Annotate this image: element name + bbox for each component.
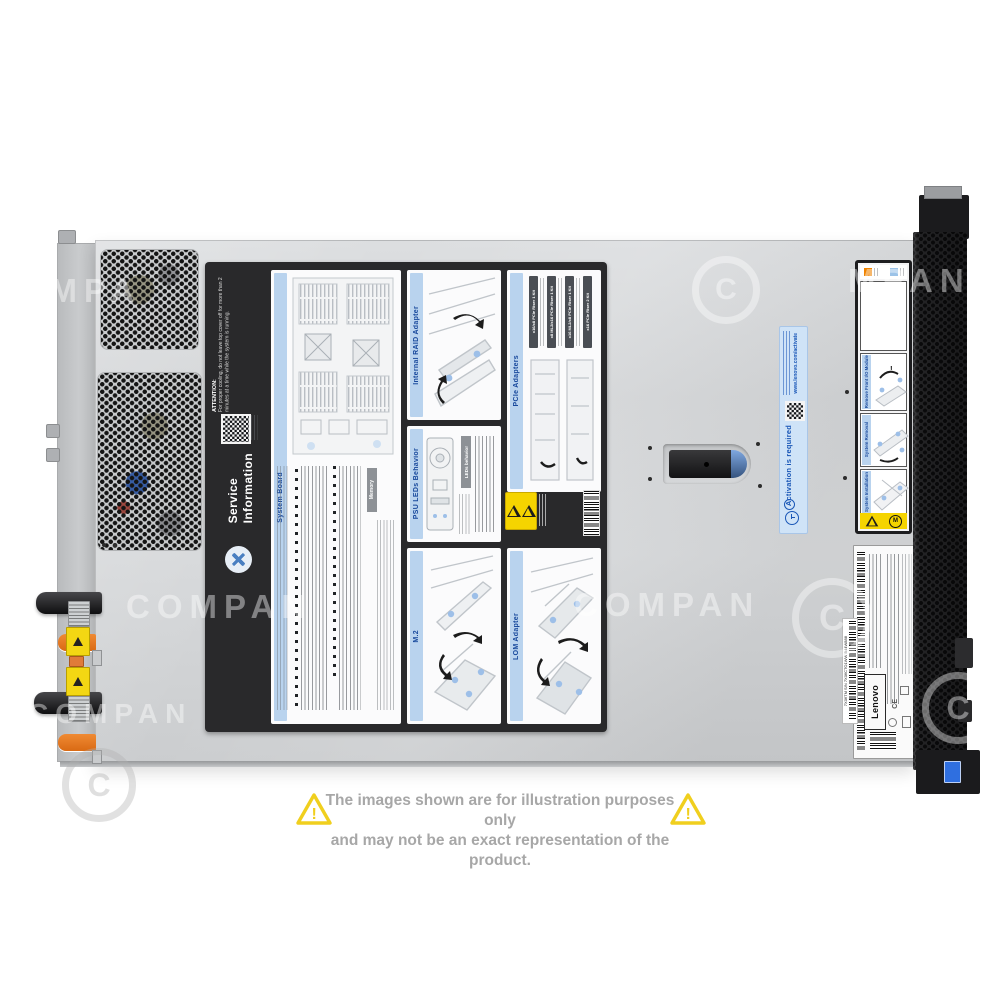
qr-caption-microtext	[251, 415, 258, 440]
panel3-title: System Installation	[864, 472, 869, 512]
rear-latch-tab-top	[58, 230, 76, 244]
pcie-illustration	[527, 354, 597, 488]
m2-illustration	[425, 552, 499, 720]
pcie-title: PCIe Adapters	[513, 355, 520, 407]
service-info-title: Service Information	[219, 438, 263, 538]
screw-dot	[648, 446, 652, 450]
watermark-text: COMPAN	[574, 586, 760, 624]
lom-illustration	[525, 552, 599, 720]
riser-microtext	[576, 278, 581, 346]
legend-microtext	[377, 520, 395, 710]
clock-icon	[785, 511, 799, 525]
raid-title: Internal RAID Adapter	[413, 306, 420, 385]
label-warning-sticker	[505, 492, 537, 530]
riser-kit-label: x16 PCIe Riser 2 Kit	[585, 293, 590, 331]
system-board-schematic	[291, 276, 397, 458]
watermark-logo: C	[792, 578, 872, 658]
riser-kit-label: x8 ML2/x16 PCIe Riser 1 Kit	[549, 286, 554, 338]
riser-kit-bar: x16 PCIe Riser 2 Kit	[583, 276, 592, 348]
pcie-header-band: PCIe Adapters	[510, 273, 523, 489]
screw-dot	[648, 477, 652, 481]
m2-title: M.2	[413, 630, 420, 643]
panel-lom-adapter: LOM Adapter	[507, 548, 601, 724]
disclaimer-warning-triangle-right: !	[669, 792, 707, 826]
activation-title-text: Activation is required	[784, 425, 793, 506]
screw-dot	[756, 442, 760, 446]
panel-m2: M.2	[407, 548, 501, 724]
rear-latch-tab-mid2	[46, 448, 60, 462]
bezel-latch-lug	[955, 638, 973, 668]
psu-leds-title: PSU LEDs Behavior	[413, 448, 420, 519]
riser-microtext	[540, 278, 545, 346]
psu-warning-label	[66, 627, 90, 656]
panel-system-installation: System Installation	[860, 469, 907, 515]
memory-header-band: Memory	[367, 468, 377, 512]
psu-illustration	[425, 434, 455, 534]
disclaimer-line2: and may not be an exact representation o…	[318, 831, 682, 871]
cert-icon	[900, 686, 909, 695]
cert-icon	[902, 716, 911, 728]
raid-header-band: Internal RAID Adapter	[410, 273, 423, 417]
rack-ear-top-cap	[924, 186, 962, 199]
svg-text:!: !	[312, 806, 317, 823]
activation-sticker: www.lenovo.com/activate Activation is re…	[779, 326, 808, 534]
watermark-text: COMPAN	[28, 698, 192, 730]
psu-spec-label	[68, 601, 90, 627]
panel1-title: Remove Front I/O Module	[864, 355, 869, 408]
arrow	[537, 658, 550, 686]
cert-icon	[888, 718, 897, 727]
warning-triangle-icon	[522, 505, 536, 517]
riser-kit-label: x16/x8 PCIe Riser 1 Kit	[531, 290, 536, 333]
ce-mark-text: CE	[892, 699, 899, 709]
front-io-label-strip: Remove Front I/O Module ! System Removal	[855, 260, 912, 534]
disclaimer-line1: The images shown are for illustration pu…	[318, 791, 682, 831]
watermark-text: COMPAN	[126, 588, 312, 626]
magnifier-icon	[784, 499, 795, 510]
panel-psu-leds: PSU LEDs Behavior LEDs behavior	[407, 426, 501, 542]
rear-latch-tab-mid1	[46, 424, 60, 438]
riser-microtext	[558, 278, 563, 346]
svg-text:!: !	[890, 365, 893, 374]
product-photo-server-top-view: ATTENTION: For proper cooling, do not le…	[0, 0, 1000, 1000]
riser-kit-bar: x16/x8 PCIe Riser 1 Kit	[529, 276, 538, 348]
activation-url: www.lenovo.com/activate	[793, 331, 799, 395]
screw-dot	[113, 543, 117, 547]
leds-table-microtext	[475, 436, 495, 532]
panel3-band: System Installation	[862, 471, 871, 513]
watermark-logo: C	[62, 748, 136, 822]
panel1-band: Remove Front I/O Module	[862, 355, 871, 409]
service-title-line1: Service	[226, 478, 240, 524]
panel-pcie-adapters: PCIe Adapters x16/x8 PCIe Riser 1 Kit x8…	[507, 270, 601, 492]
watermark-logo: C	[692, 256, 760, 324]
legend-checkbox-column	[333, 466, 336, 676]
label-barcode	[583, 490, 600, 536]
leds-behavior-title: LEDs behavior	[464, 446, 469, 478]
screw-dot	[845, 390, 849, 394]
label-barcode-small	[870, 732, 896, 750]
leds-table-microtext	[459, 494, 471, 534]
panel2-illustration	[872, 416, 910, 466]
arrow	[439, 654, 452, 680]
service-title-line2: Information	[241, 453, 255, 523]
activation-microtext	[783, 331, 792, 395]
regulatory-microtext	[902, 554, 912, 674]
psu-leds-header-band: PSU LEDs Behavior	[410, 429, 423, 539]
panel-system-board: System Board	[271, 270, 401, 724]
screw-dot	[843, 476, 847, 480]
panel-system-removal: System Removal	[860, 413, 907, 467]
watermark-text: COMPA	[0, 272, 141, 310]
psu1-pin	[92, 650, 102, 666]
attention-body: For proper cooling, do not leave top cov…	[218, 277, 230, 412]
attention-note: ATTENTION: For proper cooling, do not le…	[212, 270, 266, 412]
screw-dot	[102, 543, 106, 547]
warning-triangle-icon	[507, 505, 521, 517]
riser-kit-bar: x16 ML2/x8 PCIe Riser 1 Kit	[565, 276, 574, 348]
svg-text:!: !	[686, 806, 691, 823]
panel-internal-raid: Internal RAID Adapter	[407, 270, 501, 420]
panel3-illustration	[872, 472, 910, 514]
arrow	[453, 632, 482, 644]
raid-illustration	[425, 274, 499, 416]
lom-header-band: LOM Adapter	[510, 551, 523, 721]
orange-mini-label	[69, 656, 84, 667]
caution-triangle-icon	[866, 516, 879, 527]
caution-band: M	[860, 513, 907, 529]
panel1-illustration: !	[872, 356, 910, 410]
ce-mark: CE	[892, 696, 899, 714]
panel2-band: System Removal	[862, 415, 871, 465]
screw-dot	[758, 484, 762, 488]
product-regulatory-label: Lenovo CE	[853, 545, 917, 759]
legend-checkbox-column	[295, 466, 298, 706]
rear-vent-grid-large	[97, 372, 202, 551]
service-information-label: ATTENTION: For proper cooling, do not le…	[205, 262, 607, 732]
lenovo-logo: Lenovo	[864, 674, 886, 730]
wrench-icon	[225, 546, 252, 573]
watermark-logo: C	[922, 672, 994, 744]
intel-blue-badge	[944, 761, 961, 783]
latch-screw	[704, 462, 709, 467]
memory-title: Memory	[369, 480, 375, 499]
arrow	[558, 638, 588, 652]
weight-limit-icon: M	[889, 515, 902, 528]
riser-kit-label: x16 ML2/x8 PCIe Riser 1 Kit	[567, 286, 572, 338]
panel2-title: System Removal	[864, 422, 869, 457]
activation-title: Activation is required	[784, 423, 793, 509]
top-cover-latch-handle	[669, 450, 735, 478]
psu-warning-label	[66, 667, 90, 696]
legend-microtext	[339, 466, 361, 710]
activation-qr-icon	[785, 401, 805, 421]
disclaimer-text: The images shown are for illustration pu…	[318, 791, 682, 871]
leds-behavior-band: LEDs behavior	[461, 436, 471, 488]
chassis-bottom-edge	[60, 761, 913, 767]
watermark-text: MPAN	[848, 262, 971, 300]
lom-title: LOM Adapter	[513, 613, 520, 660]
panel-remove-front-io: Remove Front I/O Module !	[860, 353, 907, 411]
m2-header-band: M.2	[410, 551, 423, 721]
regulatory-microtext	[887, 554, 899, 704]
riser-kit-bar: x8 ML2/x16 PCIe Riser 1 Kit	[547, 276, 556, 348]
activation-url-text: www.lenovo.com/activate	[793, 333, 799, 394]
warning-microtext	[539, 494, 548, 526]
lenovo-logo-text: Lenovo	[870, 685, 880, 719]
